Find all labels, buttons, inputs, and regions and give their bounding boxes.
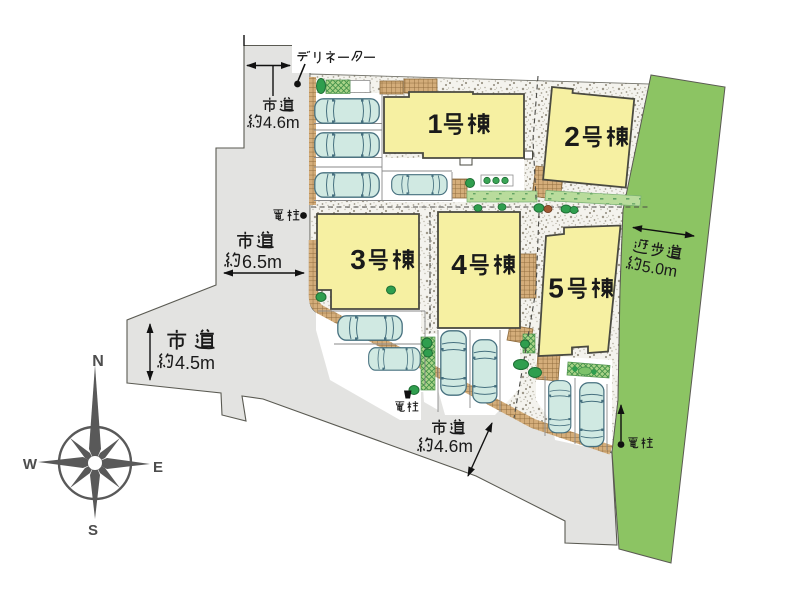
svg-text:W: W — [23, 456, 38, 473]
svg-text:4: 4 — [451, 249, 467, 280]
svg-text:6.5m: 6.5m — [242, 252, 282, 272]
svg-text:1: 1 — [427, 109, 442, 139]
svg-text:E: E — [153, 459, 163, 476]
svg-text:2: 2 — [564, 121, 580, 152]
svg-text:4.6m: 4.6m — [434, 436, 473, 456]
svg-text:S: S — [88, 522, 98, 539]
svg-text:5: 5 — [548, 273, 564, 304]
svg-text:N: N — [92, 353, 104, 370]
svg-text:4.5m: 4.5m — [175, 353, 215, 373]
svg-text:3: 3 — [350, 244, 366, 275]
svg-text:4.6m: 4.6m — [263, 114, 300, 132]
